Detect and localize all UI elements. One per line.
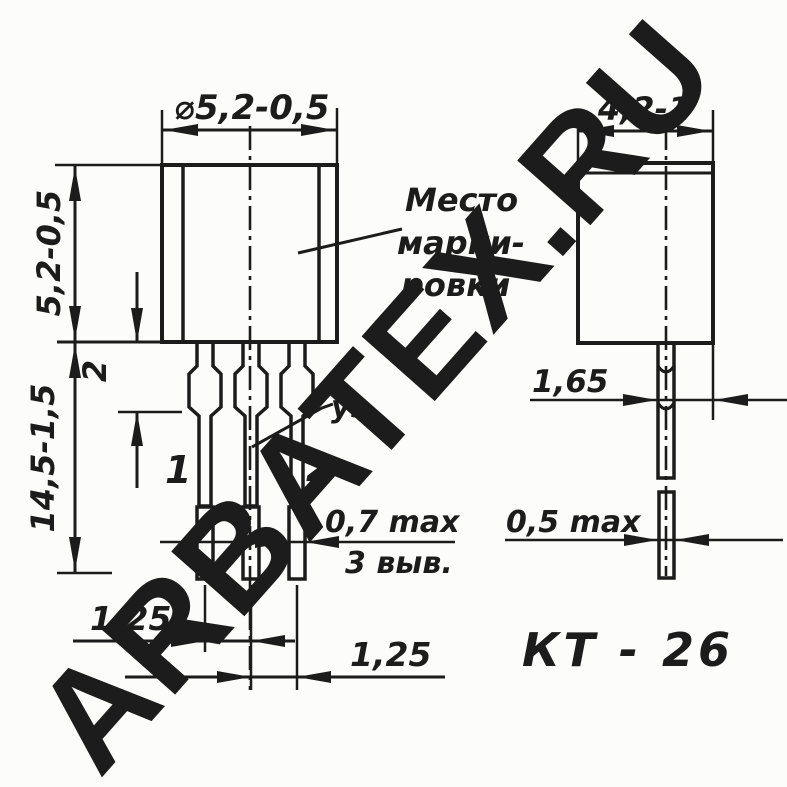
marking-label-line1: Место xyxy=(405,181,518,219)
package-name-label: КТ - 26 xyxy=(522,623,734,677)
gate-lead-label: уэ xyxy=(331,390,368,425)
arrowhead xyxy=(69,167,81,201)
lead-1-label: 1 xyxy=(165,448,191,492)
lead-1-outline xyxy=(189,343,221,506)
kt26-package-drawing: ⌀5,2-0,5 5,2-0,5 14,5-1,5 2 xyxy=(0,0,787,787)
arrowhead xyxy=(171,635,205,647)
front-view: ⌀5,2-0,5 5,2-0,5 14,5-1,5 2 xyxy=(24,88,525,690)
arrowhead xyxy=(131,412,143,446)
side-view: 4,2-1 1,65 0,5 max КТ - 26 xyxy=(505,90,787,677)
marking-leader-line xyxy=(298,229,402,253)
leads-count-note: 3 выв. xyxy=(345,546,453,581)
arrowhead xyxy=(714,394,748,406)
arrowhead xyxy=(623,394,657,406)
lead-length-dim-label: 14,5-1,5 xyxy=(24,384,62,533)
lead-2-label: 2 xyxy=(306,446,332,490)
body-height-dim-label: 5,2-0,5 xyxy=(30,190,68,317)
arrowhead xyxy=(297,671,331,683)
pitch-left-dim-label: 1,25 xyxy=(90,599,171,638)
arrowhead xyxy=(69,306,81,340)
shoulder-dim-label: 2 xyxy=(76,360,114,382)
arrowhead xyxy=(217,671,251,683)
drawing-page: ARBATEX.RU ⌀5,2-0,5 5,2-0,5 xyxy=(0,0,787,787)
arrowhead xyxy=(131,308,143,342)
arrowhead xyxy=(255,536,289,548)
diameter-dim-label: ⌀5,2-0,5 xyxy=(174,88,329,128)
tip-thickness-dim-label: 0,7 max xyxy=(325,505,461,540)
lead-offset-dim-label: 1,65 xyxy=(532,364,609,400)
pitch-right-dim-label: 1,25 xyxy=(350,635,431,674)
arrowhead xyxy=(251,635,285,647)
arrowhead xyxy=(69,537,81,571)
side-body-outline xyxy=(578,163,713,343)
body-width-dim-label: 4,2-1 xyxy=(597,90,690,128)
marking-label-line2: марки- xyxy=(397,224,525,262)
side-tip-thickness-dim-label: 0,5 max xyxy=(506,505,642,540)
arrowhead xyxy=(675,534,709,546)
marking-label-line3: ровки xyxy=(400,266,510,304)
